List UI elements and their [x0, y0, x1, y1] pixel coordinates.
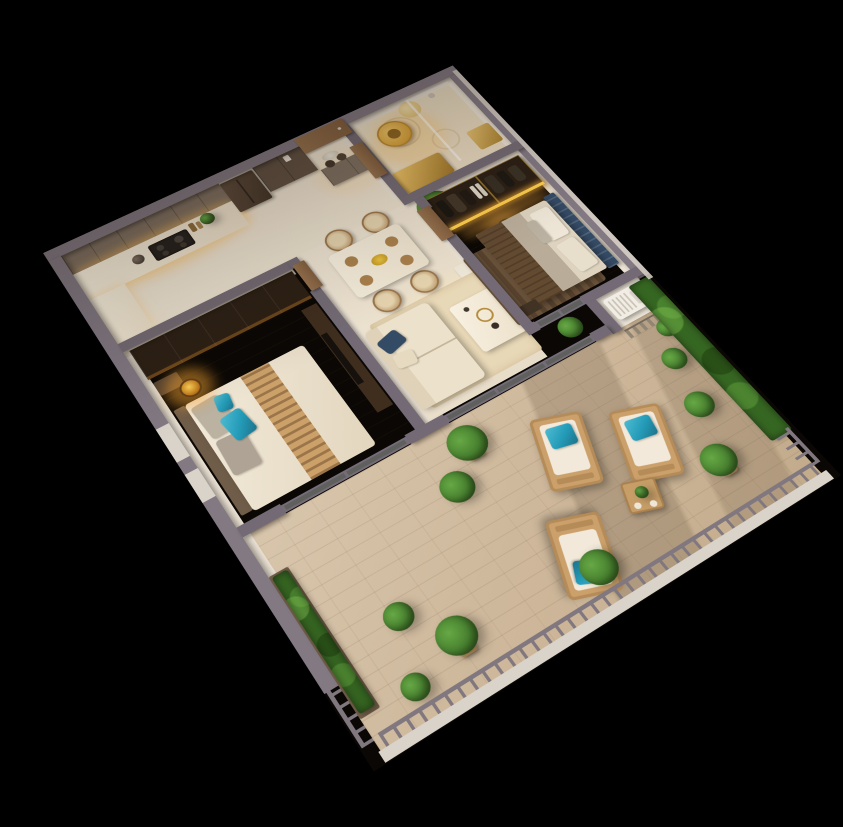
burner — [179, 241, 188, 248]
table-decor — [462, 306, 470, 312]
place-setting — [357, 273, 376, 288]
door-handle — [337, 127, 342, 131]
cup — [649, 500, 659, 508]
burner — [161, 250, 170, 257]
place-setting — [342, 254, 360, 268]
place-setting — [398, 253, 416, 267]
apartment-3d-floorplan — [43, 65, 841, 771]
cup — [633, 502, 643, 510]
flower-centerpiece — [369, 252, 391, 268]
table-plant — [633, 485, 651, 500]
table-decor — [490, 321, 501, 330]
place-setting — [383, 235, 401, 249]
fridge-door-seam — [236, 179, 255, 203]
scene-stage — [0, 0, 843, 827]
